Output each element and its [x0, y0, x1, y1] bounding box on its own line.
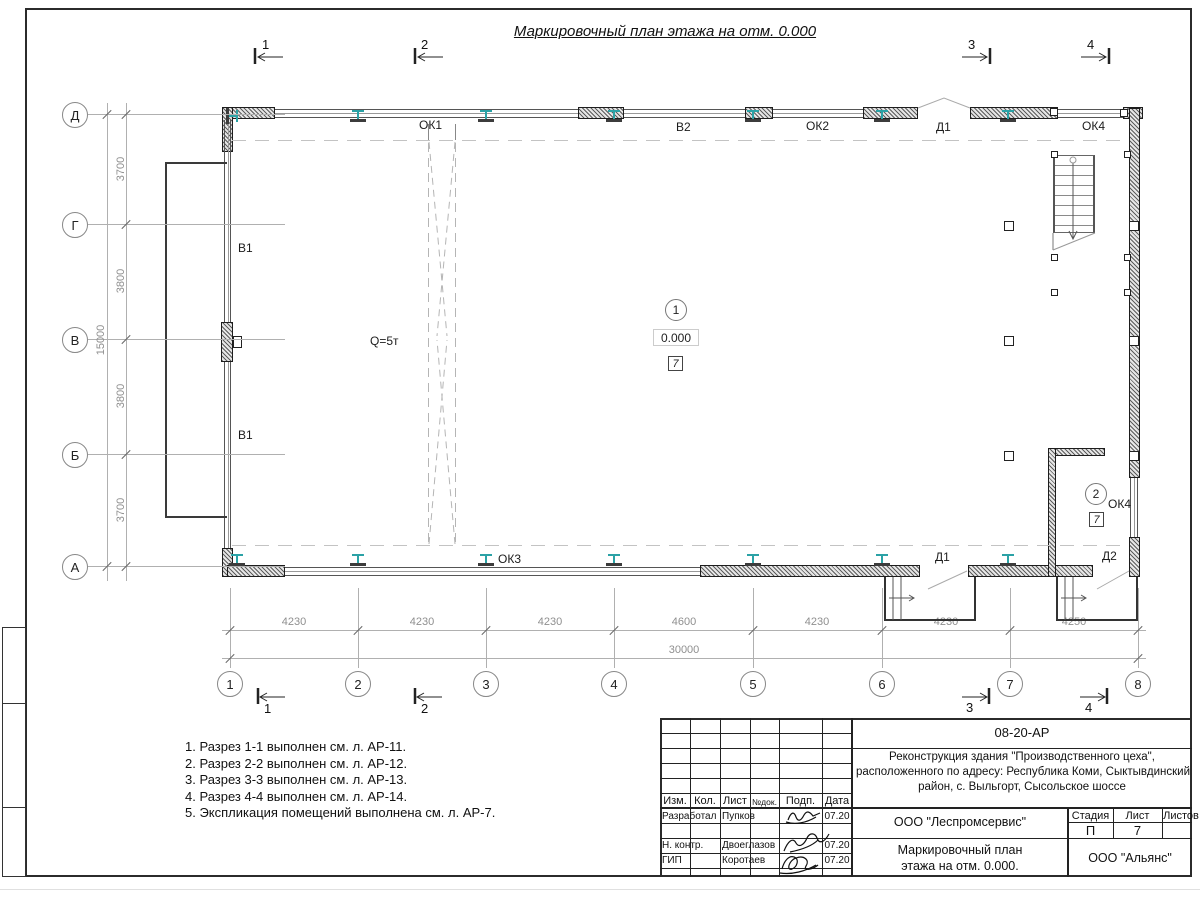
column-square — [1129, 336, 1139, 346]
dim-text: 3800 — [115, 251, 127, 311]
section-mark-1: 1 — [264, 701, 271, 716]
steel-column-icon — [1000, 110, 1016, 122]
tb-doc-number: 08-20-АР — [852, 725, 1192, 740]
tb-name: Коротаев — [722, 855, 779, 866]
tb-project-line: район, с. Выльгорт, Сысольское шоссе — [856, 781, 1188, 793]
tb-project-line: расположенного по адресу: Республика Ком… — [856, 766, 1188, 778]
tb-date: 07.20 — [822, 855, 852, 866]
tb-sheet-value: 7 — [1113, 823, 1162, 838]
title-block-line — [660, 778, 852, 779]
title-block-line — [660, 793, 852, 794]
steel-column-icon — [874, 554, 890, 566]
mark-d2: Д2 — [1102, 549, 1117, 563]
room-wall — [1048, 448, 1105, 456]
window-strip-ok1 — [275, 109, 578, 118]
tb-drawing-title-line: Маркировочный план — [852, 843, 1068, 857]
steel-column-icon — [478, 110, 494, 122]
dim-text: 4600 — [654, 616, 714, 628]
tb-role: ГИП — [662, 855, 719, 866]
frame-left-cell — [2, 703, 26, 808]
column-square — [1004, 221, 1014, 231]
title-block-line — [660, 748, 1192, 749]
mark-ok4-top: ОК4 — [1082, 119, 1105, 133]
tb-col-list: Лист — [720, 795, 750, 807]
mark-v2: В2 — [676, 120, 691, 134]
frame-left-cell — [2, 627, 26, 704]
type-mark: 7 — [1089, 512, 1104, 527]
axis-line — [88, 114, 285, 115]
steel-column-icon — [226, 108, 238, 124]
axis-col-circle: 8 — [1125, 671, 1151, 697]
tb-role: Н. контр. — [662, 840, 719, 851]
tb-role: Разработал — [662, 811, 719, 822]
title-block-line — [660, 823, 852, 824]
steel-column-icon — [1000, 554, 1016, 566]
column-square — [1120, 109, 1128, 117]
steel-column-icon — [745, 110, 761, 122]
column-square — [1004, 336, 1014, 346]
dim-text: 3700 — [115, 480, 127, 540]
window-strip-ok4-right — [1130, 478, 1138, 537]
axis-line — [88, 454, 285, 455]
axis-row-circle: А — [62, 554, 88, 580]
column-square — [1124, 254, 1131, 261]
room-number-badge: 1 — [665, 299, 687, 321]
dim-text: 4250 — [1044, 616, 1104, 628]
drawing-sheet: Маркировочный план этажа на отм. 0.000 — [0, 0, 1200, 900]
column-square — [1124, 151, 1131, 158]
axis-row-circle: Г — [62, 212, 88, 238]
section-mark-2: 2 — [421, 701, 428, 716]
dim-text: 4230 — [392, 616, 452, 628]
dim-text: 4230 — [787, 616, 847, 628]
title-block-line — [660, 838, 1192, 839]
steel-column-icon — [745, 554, 761, 566]
tb-drawing-title-line: этажа на отм. 0.000. — [852, 859, 1068, 873]
column-square — [1051, 151, 1058, 158]
note-line: 1. Разрез 1-1 выполнен см. л. АР-11. — [185, 739, 495, 756]
dim-text: 4230 — [916, 616, 976, 628]
steel-column-icon — [350, 554, 366, 566]
tb-date: 07.20 — [822, 840, 852, 851]
tb-col-data: Дата — [822, 795, 852, 807]
dim-line — [107, 103, 108, 581]
dim-text: 3800 — [115, 366, 127, 426]
note-line: 2. Разрез 2-2 выполнен см. л. АР-12. — [185, 756, 495, 773]
axis-col-circle: 6 — [869, 671, 895, 697]
section-mark-2: 2 — [421, 37, 428, 52]
tb-sheet-label: Лист — [1113, 810, 1162, 822]
tb-col-kol: Кол. — [690, 795, 720, 807]
mark-ok2: ОК2 — [806, 119, 829, 133]
window-strip-v2 — [624, 109, 745, 118]
frame-left-cell — [2, 807, 26, 877]
axis-col-circle: 1 — [217, 671, 243, 697]
window-strip-ok3 — [285, 567, 700, 576]
axis-col-circle: 7 — [997, 671, 1023, 697]
notes-list: 1. Разрез 1-1 выполнен см. л. АР-11. 2. … — [185, 739, 495, 822]
section-mark-4: 4 — [1087, 37, 1094, 52]
tb-name: Двоеглазов — [722, 840, 779, 851]
dim-text: 3700 — [115, 139, 127, 199]
tb-stage-label: Стадия — [1068, 810, 1113, 822]
elevation-mark: 0.000 — [653, 329, 699, 346]
section-mark-4: 4 — [1085, 700, 1092, 715]
mark-d1-bottom: Д1 — [935, 550, 950, 564]
steel-column-icon — [874, 110, 890, 122]
tb-name: Пупков — [722, 811, 779, 822]
column-square — [1051, 254, 1058, 261]
annex-outline — [165, 162, 227, 518]
title-block-line — [660, 807, 1192, 809]
tb-org: ООО "Леспромсервис" — [852, 815, 1068, 829]
tb-col-izm: Изм. — [660, 795, 690, 807]
note-line: 5. Экспликация помещений выполнена см. л… — [185, 805, 495, 822]
column-square — [1124, 289, 1131, 296]
mark-crane-capacity: Q=5т — [370, 334, 399, 348]
dim-text-total: 30000 — [654, 644, 714, 656]
dim-text-total: 15000 — [95, 310, 107, 370]
tb-company: ООО "Альянс" — [1068, 851, 1192, 865]
room-wall — [1048, 448, 1056, 577]
window-strip-ok4-top — [1058, 109, 1123, 118]
section-mark-3: 3 — [966, 700, 973, 715]
note-line: 4. Разрез 4-4 выполнен см. л. АР-14. — [185, 789, 495, 806]
section-mark-3: 3 — [968, 37, 975, 52]
staircase — [1053, 155, 1095, 233]
tb-stage-value: П — [1068, 823, 1113, 838]
dim-line — [222, 658, 1146, 659]
column-square — [233, 336, 242, 348]
axis-row-circle: Д — [62, 102, 88, 128]
axis-line — [88, 224, 285, 225]
column-square — [1051, 289, 1058, 296]
steel-column-icon — [350, 110, 366, 122]
tb-date: 07.20 — [822, 811, 852, 822]
dim-text: 4230 — [520, 616, 580, 628]
title-block-line — [660, 733, 852, 734]
mark-ok4-room: ОК4 — [1108, 497, 1131, 511]
type-mark: 7 — [668, 356, 683, 371]
mark-v1-upper: В1 — [238, 241, 253, 255]
note-line: 3. Разрез 3-3 выполнен см. л. АР-13. — [185, 772, 495, 789]
steel-column-icon — [229, 554, 245, 566]
tb-project-line: Реконструкция здания "Производственного … — [856, 751, 1188, 763]
tb-sheets-label: Листов — [1162, 810, 1200, 822]
tb-col-podp: Подп. — [779, 795, 822, 807]
axis-col-circle: 3 — [473, 671, 499, 697]
axis-line — [88, 339, 285, 340]
axis-row-circle: Б — [62, 442, 88, 468]
steel-column-icon — [478, 554, 494, 566]
steel-column-icon — [606, 554, 622, 566]
mark-d1-top: Д1 — [936, 120, 951, 134]
dim-text: 4230 — [264, 616, 324, 628]
column-square — [1050, 108, 1058, 116]
axis-line — [88, 566, 285, 567]
title-block-line — [660, 853, 852, 854]
column-square — [1129, 451, 1139, 461]
title-block-line — [660, 868, 852, 869]
axis-col-circle: 2 — [345, 671, 371, 697]
wall-pier — [700, 565, 920, 577]
wall-pier — [968, 565, 1093, 577]
axis-row-circle: В — [62, 327, 88, 353]
room-number-badge: 2 — [1085, 483, 1107, 505]
wall-pier — [1129, 537, 1140, 577]
mark-ok1: ОК1 — [419, 118, 442, 132]
drawing-title: Маркировочный план этажа на отм. 0.000 — [390, 23, 940, 40]
window-strip-ok2 — [773, 109, 863, 118]
axis-col-circle: 4 — [601, 671, 627, 697]
tb-col-ndok: №док. — [750, 797, 779, 807]
mark-v1-lower: В1 — [238, 428, 253, 442]
axis-col-circle: 5 — [740, 671, 766, 697]
mark-ok3: ОК3 — [498, 552, 521, 566]
title-block-line — [660, 763, 852, 764]
column-square — [1129, 221, 1139, 231]
page-edge — [0, 889, 1200, 890]
column-square — [1004, 451, 1014, 461]
wall-pier — [863, 107, 918, 119]
steel-column-icon — [606, 110, 622, 122]
section-mark-1: 1 — [262, 37, 269, 52]
